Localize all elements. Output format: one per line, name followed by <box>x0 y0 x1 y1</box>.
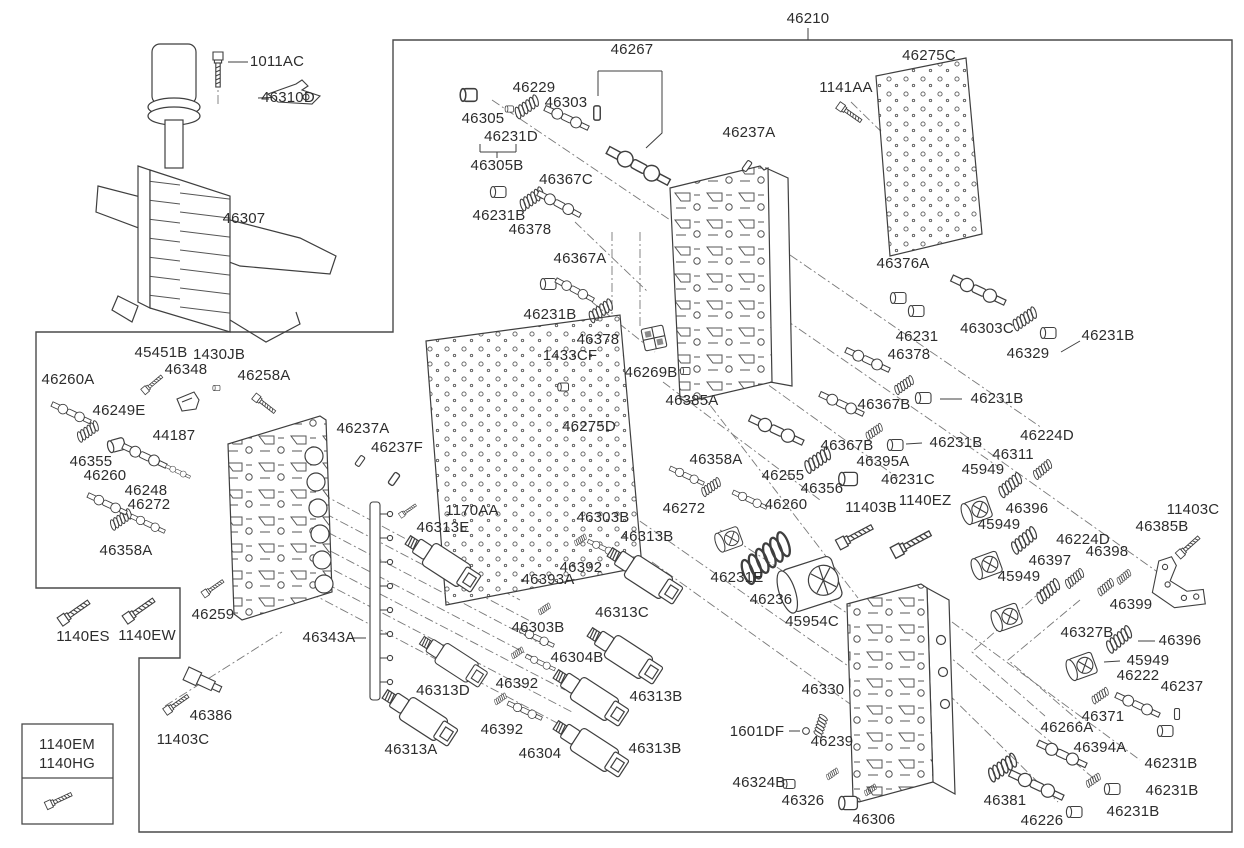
main-assembly-box-outline <box>36 40 1232 832</box>
sleeve-46231b-h <box>1066 807 1082 818</box>
cap-46324b <box>783 780 795 789</box>
solenoid-46313b-1 <box>603 541 685 607</box>
sleeve-46231 <box>908 306 924 317</box>
valve-46367b-b <box>818 389 866 419</box>
spring-46392-c <box>493 692 509 706</box>
parts-diagram: 1011AC46310D4630746210462674622946303463… <box>0 0 1244 848</box>
valve-46304 <box>506 699 543 722</box>
valve-46367b-a <box>844 345 892 375</box>
valve-46248 <box>121 441 169 471</box>
bolt-1011ac <box>213 52 223 87</box>
sleeve-46231c <box>839 472 858 485</box>
cup-45949-c <box>989 603 1023 633</box>
spring-46396-a <box>1007 525 1041 557</box>
spring-46358a-right <box>698 476 723 498</box>
cup-45949-a <box>959 496 993 526</box>
gasket-strip-46343a <box>370 502 393 700</box>
valve-46222 <box>1114 690 1162 720</box>
plug-46385a <box>680 367 690 374</box>
valve-46267 <box>604 143 672 189</box>
bolt-11403c-left <box>163 693 191 716</box>
valve-46303 <box>543 103 591 133</box>
spring-46224d-b <box>1062 567 1087 590</box>
screw-1170aa <box>398 503 417 519</box>
spring-46224d-a <box>1030 458 1055 481</box>
valve-46255 <box>747 412 805 449</box>
spring-46397 <box>1033 577 1064 606</box>
sleeve-46231b-e <box>887 440 903 451</box>
spring-46398 <box>1095 577 1117 597</box>
spring-46239 <box>825 767 841 781</box>
cup-46231e <box>713 526 744 553</box>
bolt-46259 <box>201 578 225 598</box>
bolt-46258a <box>252 393 277 415</box>
spring-46356 <box>800 445 835 475</box>
sleeve-46231b-c <box>1040 328 1056 339</box>
cup-45949-d <box>1064 652 1098 682</box>
sleeve-46231b-g <box>1104 784 1120 795</box>
spring-46393a <box>537 602 553 616</box>
valve-46272-left <box>129 512 166 535</box>
plug-46305 <box>460 89 477 102</box>
upper-valve-body <box>670 166 792 402</box>
sensor-45451b <box>141 374 164 395</box>
bolt-11403b <box>835 522 874 550</box>
valve-46260a <box>50 400 92 427</box>
valve-46367c <box>535 188 582 220</box>
pin-46237f <box>388 472 400 486</box>
valve-46304b <box>518 626 555 649</box>
sleeve-46231b-b <box>540 279 556 290</box>
bolt-11403c-right <box>1175 534 1201 559</box>
plug-1433cf <box>558 383 569 391</box>
valve-46226 <box>1007 767 1065 804</box>
pin-46237 <box>1175 709 1180 720</box>
bolts <box>57 52 1201 715</box>
solenoid-46313a <box>378 683 460 749</box>
diagram-artwork <box>0 0 1244 848</box>
valve-46303b-b <box>524 653 556 673</box>
ring-46231d <box>505 106 513 112</box>
valve-44187 <box>165 463 192 480</box>
bolt-1140ew <box>122 596 156 624</box>
lower-valve-body <box>847 584 955 802</box>
sleeve-46231b-f <box>1157 726 1173 737</box>
valve-46367a <box>554 276 596 304</box>
cup-45949-b <box>969 551 1003 581</box>
spring-46378-c <box>891 374 916 396</box>
inset-bolt-icon <box>44 791 73 810</box>
sleeve-46231b-d <box>915 393 931 404</box>
bolt-1141aa <box>836 102 864 125</box>
bolt-1140es <box>57 598 91 626</box>
spring-46392-b <box>510 646 526 660</box>
spring-46396-b <box>1102 624 1136 656</box>
pin-46267 <box>594 106 601 120</box>
sleeve-46231b-a <box>490 187 506 198</box>
spring-46395a <box>863 422 885 441</box>
accumulator-46269b <box>641 325 667 351</box>
sleeve-46376a <box>890 293 906 304</box>
valve-46266a <box>1035 738 1088 771</box>
clip-46348 <box>177 392 199 411</box>
pin-46237a-left <box>355 455 365 467</box>
spring-46229 <box>511 93 543 120</box>
sensor-46386 <box>183 667 223 696</box>
valve-46272-right <box>668 464 705 487</box>
valve-46303c <box>949 272 1007 309</box>
spring-46330 <box>812 713 829 739</box>
left-valve-body <box>228 416 333 620</box>
spring-46371 <box>1089 686 1111 705</box>
solenoid-46313d <box>416 630 490 689</box>
bracket-46385b <box>1151 555 1211 612</box>
piston-45954c <box>773 555 845 616</box>
solenoid-46313c <box>583 621 665 687</box>
solenoid-46313b-2 <box>549 663 631 729</box>
plug-46326 <box>839 796 858 809</box>
inset-reference-box <box>22 724 113 824</box>
spring-46399 <box>1115 568 1134 585</box>
spring-46394a <box>1084 772 1103 788</box>
separator-plate-46275c <box>876 58 982 256</box>
bolt-1140ez <box>890 528 933 558</box>
pin-1430jb <box>213 385 220 390</box>
spring-46329 <box>1009 305 1041 332</box>
bracket-46310d <box>268 80 320 104</box>
valve-46260-left <box>86 491 128 518</box>
valve-46260-right <box>731 488 768 511</box>
